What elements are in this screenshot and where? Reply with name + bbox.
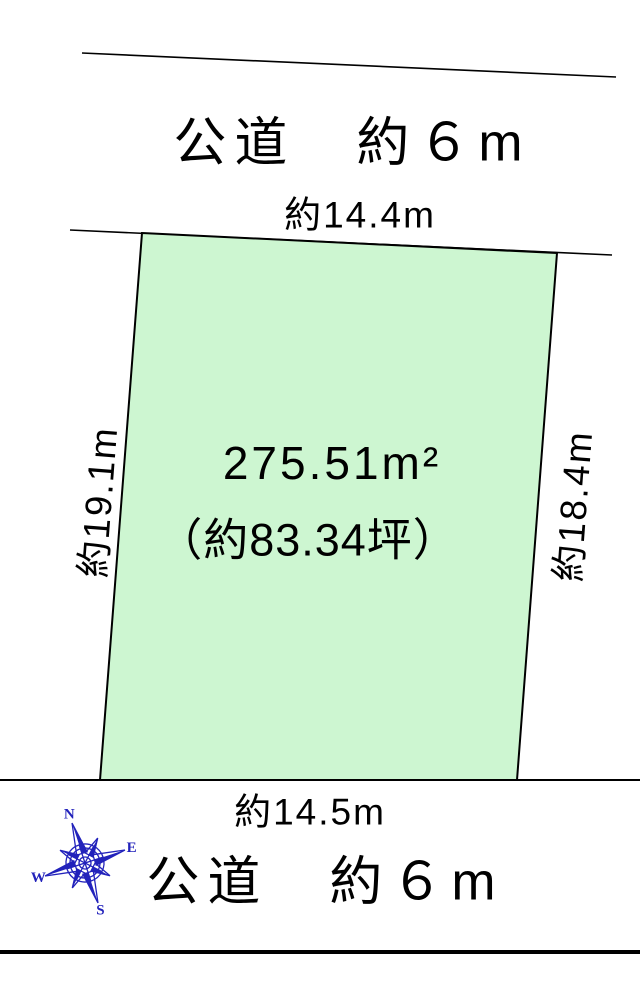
compass-east-label: E [127, 840, 137, 856]
parcel-shape [100, 233, 557, 780]
top-road-label: 公道 約６m [173, 117, 530, 170]
parcel-bottom-dimension: 約14.5m [234, 794, 386, 831]
compass-south-label: S [96, 903, 104, 919]
parcel-area-tsubo: （約83.34坪） [157, 518, 459, 563]
top-road-far-line [82, 53, 616, 77]
parcel-area-sqm: 275.51m² [223, 440, 441, 486]
compass-rose-icon: N E S W [25, 803, 145, 923]
compass-north-label: N [64, 806, 75, 822]
parcel-top-dimension: 約14.4m [284, 197, 436, 234]
bottom-road-label: 公道 約６m [146, 856, 503, 909]
compass-west-label: W [31, 870, 46, 886]
bottom-border-bar [0, 950, 640, 954]
land-plot-diagram: 公道 約６m 約14.4m 275.51m² （約83.34坪） 約19.1m … [0, 0, 640, 999]
